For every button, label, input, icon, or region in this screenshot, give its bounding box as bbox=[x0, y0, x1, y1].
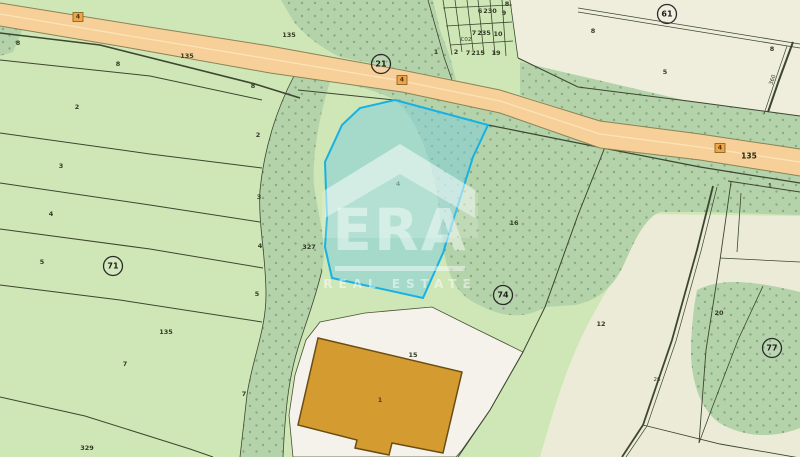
parcel-label: 2 bbox=[256, 131, 261, 139]
parcel-label: 7 bbox=[466, 49, 471, 57]
parcel-label: 2 bbox=[454, 48, 459, 56]
parcel-label: 4 bbox=[396, 180, 401, 188]
parcel-label: C02 bbox=[461, 37, 472, 43]
circled-number-text: 21 bbox=[375, 60, 387, 69]
parcel-label: 2 bbox=[75, 103, 80, 111]
parcel-label: 7 bbox=[123, 360, 128, 368]
parcel-label: 8 bbox=[16, 39, 21, 47]
parcel-label: 135 bbox=[159, 328, 173, 336]
parcel-label: 5 bbox=[255, 290, 260, 298]
circled-parcel-number: 61 bbox=[658, 5, 677, 24]
parcel-label: 235 bbox=[477, 29, 491, 37]
parcel-label: 135 bbox=[180, 52, 194, 60]
circled-number-text: 74 bbox=[497, 291, 509, 300]
parcel-label: 5 bbox=[663, 68, 668, 76]
circled-number-text: 61 bbox=[661, 10, 673, 19]
parcel-label: 135 bbox=[282, 31, 296, 39]
parcel-label: 26 bbox=[654, 377, 661, 383]
road-marker: 4 bbox=[715, 144, 725, 153]
road-marker-text: 4 bbox=[76, 14, 80, 21]
parcel-label: 6 bbox=[478, 7, 483, 15]
parcel-label: 20 bbox=[714, 309, 724, 317]
parcel-label: 8 bbox=[591, 27, 596, 35]
parcel-label: 327 bbox=[302, 243, 316, 251]
parcel-label: 4 bbox=[258, 242, 263, 250]
parcel-label: 329 bbox=[80, 444, 94, 452]
parcel-label: 4 bbox=[49, 210, 54, 218]
parcel-label: 12 bbox=[596, 320, 605, 328]
parcel-label: 15 bbox=[408, 351, 418, 359]
parcel-label: 3 bbox=[59, 162, 64, 170]
parcel-label: 16 bbox=[509, 219, 519, 227]
circled-parcel-number: 71 bbox=[104, 257, 123, 276]
parcel-label: 8 bbox=[770, 45, 775, 53]
parcel-label: 215 bbox=[471, 49, 485, 57]
parcel-label: 8 bbox=[116, 60, 121, 68]
parcel-label: 5 bbox=[40, 258, 45, 266]
road-marker-text: 4 bbox=[718, 145, 722, 152]
parcel-label: 7 bbox=[242, 390, 247, 398]
parcel-label: 1 bbox=[378, 396, 383, 404]
parcel-label: 8 bbox=[505, 0, 510, 8]
parcel-label: 8 bbox=[251, 82, 256, 90]
road-marker-text: 4 bbox=[400, 77, 404, 84]
circled-number-text: 77 bbox=[766, 344, 777, 353]
parcel-label: 230 bbox=[483, 7, 497, 15]
circled-number-text: 71 bbox=[107, 262, 119, 271]
parcel-label: 9 bbox=[502, 9, 507, 17]
parcel-label: 1 bbox=[434, 48, 439, 56]
circled-parcel-number: 77 bbox=[763, 339, 782, 358]
parcel-label: 135 bbox=[741, 152, 757, 161]
parcel-label: 7 bbox=[472, 29, 477, 37]
parcel-label: 19 bbox=[491, 49, 501, 57]
parcel-label: 3 bbox=[257, 193, 262, 201]
road-marker: 4 bbox=[73, 13, 83, 22]
map-canvas[interactable]: 8135828213533445513577329327862309723510… bbox=[0, 0, 800, 457]
parcel-label: 5 bbox=[768, 183, 772, 189]
cadastral-map: 8135828213533445513577329327862309723510… bbox=[0, 0, 800, 457]
road-marker: 4 bbox=[397, 76, 407, 85]
circled-parcel-number: 21 bbox=[372, 55, 391, 74]
circled-parcel-number: 74 bbox=[494, 286, 513, 305]
parcel-label: 10 bbox=[493, 30, 503, 38]
